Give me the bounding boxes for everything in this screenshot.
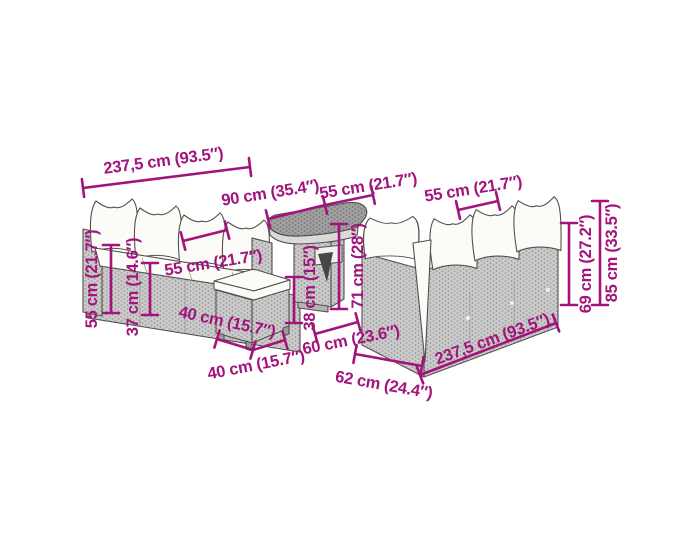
diagram-canvas: 237,5 cm (93.5″) 90 cm (35.4″) 55 cm (21… bbox=[0, 0, 700, 550]
dimension-sofa-width-top: 237,5 cm (93.5″) bbox=[82, 144, 251, 197]
dimension-table-width-55: 55 cm (21.7″) bbox=[318, 169, 418, 205]
cushion bbox=[513, 197, 563, 253]
dimension-label: 37 cm (14.6″) bbox=[124, 238, 142, 336]
dimension-label: 38 cm (15″) bbox=[301, 245, 319, 330]
corner-sofa-side bbox=[362, 253, 424, 377]
dimension-label: 55 cm (21.7″) bbox=[83, 230, 101, 328]
dimension-total-height-85: 85 cm (33.5″) bbox=[592, 201, 621, 305]
dimension-line bbox=[561, 223, 577, 305]
dimension-label: 55 cm (21.7″) bbox=[423, 172, 523, 205]
dimension-label: 40 cm (15.7″) bbox=[206, 347, 306, 383]
cushion bbox=[471, 206, 521, 262]
dimension-label: 69 cm (27.2″) bbox=[577, 215, 595, 313]
cushion bbox=[429, 215, 479, 271]
dimension-back-height-69: 69 cm (27.2″) bbox=[561, 215, 595, 313]
dimension-label: 90 cm (35.4″) bbox=[220, 176, 320, 209]
dimension-label: 71 cm (28″) bbox=[349, 223, 367, 308]
dimension-label: 55 cm (21.7″) bbox=[318, 169, 418, 202]
dimension-label: 85 cm (33.5″) bbox=[603, 204, 621, 302]
cushion bbox=[363, 216, 419, 259]
dimension-diagram: 237,5 cm (93.5″) 90 cm (35.4″) 55 cm (21… bbox=[0, 0, 700, 550]
